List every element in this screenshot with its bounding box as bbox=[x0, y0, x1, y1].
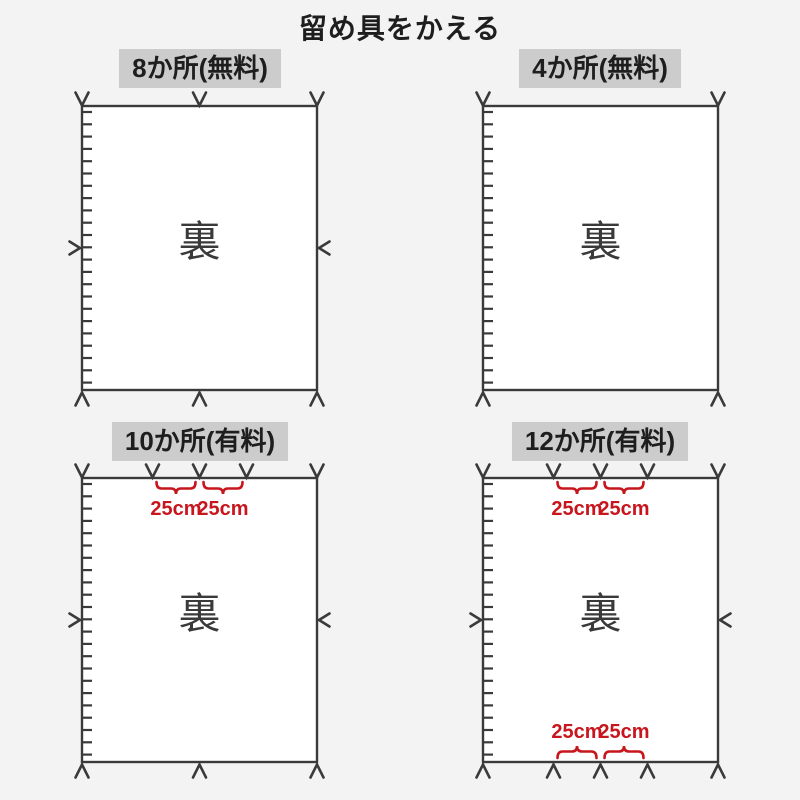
spacing-label: 25cm bbox=[551, 721, 602, 743]
fastener-mark-up-icon bbox=[594, 765, 607, 778]
fastener-mark-left-icon bbox=[720, 614, 731, 627]
fastener-mark-up-icon bbox=[547, 765, 560, 778]
fastener-mark-up-icon bbox=[712, 765, 725, 778]
fastener-mark-down-icon bbox=[193, 465, 206, 478]
fastener-mark-left-icon bbox=[319, 242, 330, 255]
fastener-mark-down-icon bbox=[311, 465, 324, 478]
diagram-10-paid: 25cm25cm裏 bbox=[60, 460, 340, 782]
fastener-mark-down-icon bbox=[594, 465, 607, 478]
panel-4-free-header: 4か所(無料) bbox=[400, 49, 800, 88]
badge-8-free: 8か所(無料) bbox=[119, 49, 281, 88]
fastener-mark-down-icon bbox=[547, 465, 560, 478]
fastener-mark-down-icon bbox=[712, 465, 725, 478]
fastener-mark-down-icon bbox=[240, 465, 253, 478]
spacing-label: 25cm bbox=[551, 498, 602, 520]
fastener-mark-down-icon bbox=[641, 465, 654, 478]
fastener-mark-right-icon bbox=[70, 242, 81, 255]
fastener-mark-up-icon bbox=[76, 765, 89, 778]
fastener-mark-up-icon bbox=[311, 765, 324, 778]
fastener-mark-up-icon bbox=[193, 393, 206, 406]
badge-10-paid: 10か所(有料) bbox=[112, 422, 288, 461]
fastener-mark-right-icon bbox=[70, 614, 81, 627]
fastener-mark-up-icon bbox=[641, 765, 654, 778]
fastener-mark-up-icon bbox=[193, 765, 206, 778]
back-label: 裏 bbox=[178, 590, 220, 637]
spacing-label: 25cm bbox=[598, 721, 649, 743]
fastener-mark-up-icon bbox=[477, 393, 490, 406]
fastener-mark-up-icon bbox=[76, 393, 89, 406]
fastener-mark-up-icon bbox=[311, 393, 324, 406]
diagram-4-free: 裏 bbox=[461, 88, 741, 410]
diagram-12-paid: 25cm25cm25cm25cm裏 bbox=[461, 460, 741, 782]
fastener-mark-down-icon bbox=[76, 465, 89, 478]
page-title: 留め具をかえる bbox=[0, 7, 800, 47]
fastener-mark-up-icon bbox=[712, 393, 725, 406]
fastener-mark-down-icon bbox=[311, 93, 324, 106]
fastener-mark-left-icon bbox=[319, 614, 330, 627]
fastener-mark-right-icon bbox=[471, 614, 482, 627]
spacing-label: 25cm bbox=[197, 498, 248, 520]
fastener-mark-down-icon bbox=[477, 465, 490, 478]
fastener-mark-up-icon bbox=[477, 765, 490, 778]
fastener-mark-down-icon bbox=[193, 93, 206, 106]
spacing-label: 25cm bbox=[150, 498, 201, 520]
panel-12-paid-header: 12か所(有料) bbox=[400, 422, 800, 461]
badge-12-paid: 12か所(有料) bbox=[512, 422, 688, 461]
back-label: 裏 bbox=[579, 218, 621, 265]
back-label: 裏 bbox=[579, 590, 621, 637]
badge-4-free: 4か所(無料) bbox=[519, 49, 681, 88]
fastener-mark-down-icon bbox=[146, 465, 159, 478]
fastener-mark-down-icon bbox=[712, 93, 725, 106]
spacing-label: 25cm bbox=[598, 498, 649, 520]
back-label: 裏 bbox=[178, 218, 220, 265]
diagram-8-free: 裏 bbox=[60, 88, 340, 410]
panel-10-paid-header: 10か所(有料) bbox=[0, 422, 400, 461]
fastener-mark-down-icon bbox=[76, 93, 89, 106]
fastener-mark-down-icon bbox=[477, 93, 490, 106]
panel-8-free-header: 8か所(無料) bbox=[0, 49, 400, 88]
